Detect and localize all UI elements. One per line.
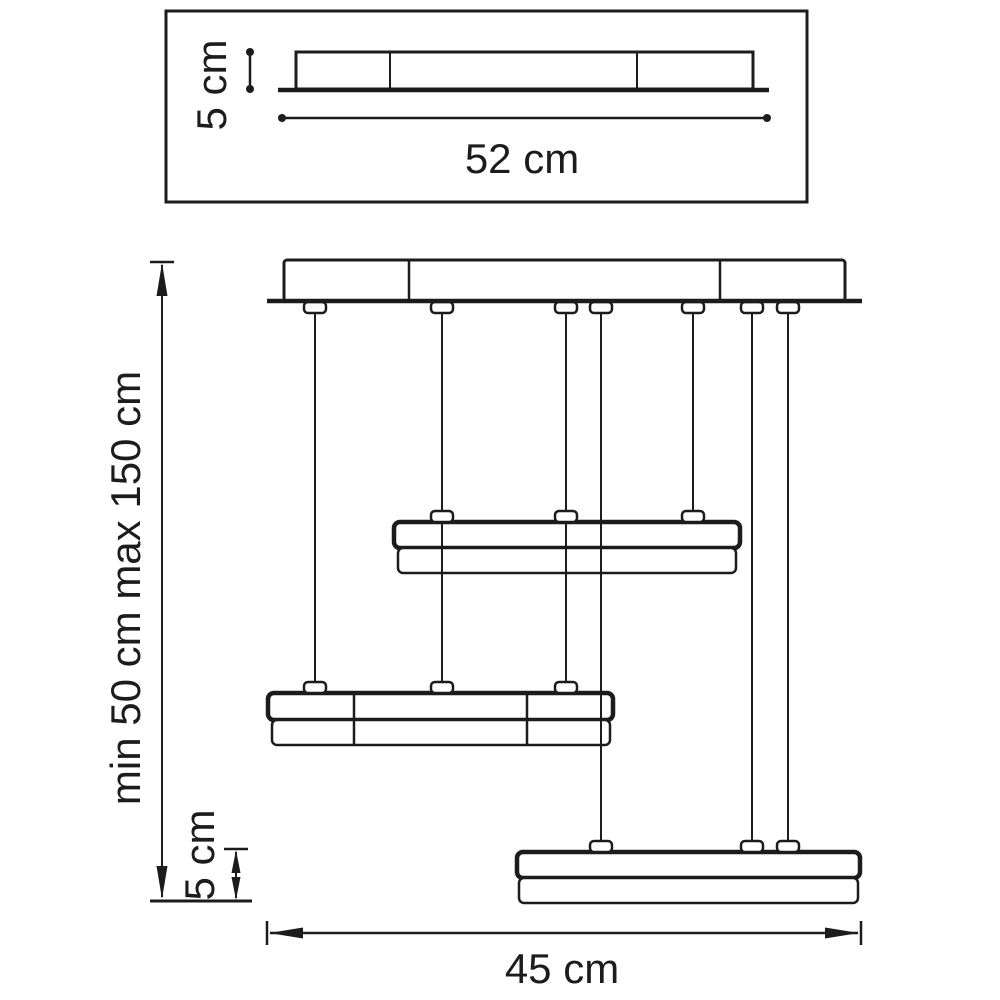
lamp-diffuser bbox=[519, 878, 858, 903]
front-view: min 50 cm max 150 cm 5 cm 45 cm bbox=[102, 260, 862, 992]
top-view-bar bbox=[296, 52, 753, 89]
top-view-width-label: 52 cm bbox=[465, 135, 579, 182]
top-view-height-label: 5 cm bbox=[188, 39, 235, 130]
suspension-wires bbox=[315, 313, 788, 843]
wire-fitting bbox=[682, 302, 704, 313]
wire-cap bbox=[777, 841, 799, 852]
arrowhead-up bbox=[157, 263, 168, 296]
wire-cap bbox=[555, 511, 577, 522]
dimension-dot bbox=[246, 48, 254, 56]
lamp-tier-bottom bbox=[517, 852, 860, 903]
dimension-dot bbox=[246, 85, 254, 93]
wire-cap bbox=[555, 682, 577, 693]
top-view: 5 cm 52 cm bbox=[166, 11, 807, 202]
lamp-diffuser bbox=[272, 720, 610, 745]
lamp-height-label: 5 cm bbox=[176, 809, 223, 900]
wire-fitting bbox=[555, 302, 577, 313]
wire-cap bbox=[431, 511, 453, 522]
wire-fitting bbox=[777, 302, 799, 313]
lamp-height-dimension: 5 cm bbox=[176, 809, 248, 900]
lamp-tier-lower-left bbox=[268, 693, 613, 745]
wire-cap bbox=[304, 682, 326, 693]
arrowhead-up bbox=[232, 850, 241, 873]
wire-cap bbox=[682, 511, 704, 522]
canopy-fittings bbox=[304, 302, 799, 313]
suspension-height-label: min 50 cm max 150 cm bbox=[102, 371, 149, 805]
suspension-height-dimension: min 50 cm max 150 cm bbox=[102, 262, 252, 901]
arrowhead-left bbox=[269, 928, 303, 939]
wire-cap bbox=[431, 682, 453, 693]
dimension-dot bbox=[278, 114, 286, 122]
arrowhead-right bbox=[825, 928, 859, 939]
dimension-dot bbox=[763, 114, 771, 122]
wire-fitting bbox=[590, 302, 612, 313]
dimension-diagram: 5 cm 52 cm bbox=[0, 0, 1000, 1000]
fixture-width-label: 45 cm bbox=[505, 945, 619, 992]
wire-fitting bbox=[431, 302, 453, 313]
wire-fitting bbox=[304, 302, 326, 313]
arrowhead-down bbox=[232, 877, 241, 900]
wire-fitting bbox=[741, 302, 763, 313]
fixture-width-dimension: 45 cm bbox=[267, 921, 861, 992]
arrowhead-down bbox=[157, 866, 168, 899]
diagram-svg: 5 cm 52 cm bbox=[0, 0, 1000, 1000]
wire-cap bbox=[590, 841, 612, 852]
ceiling-canopy bbox=[284, 260, 845, 301]
lamp-body-top bbox=[268, 693, 613, 720]
lamp-body-top bbox=[517, 852, 860, 878]
wire-cap bbox=[741, 841, 763, 852]
